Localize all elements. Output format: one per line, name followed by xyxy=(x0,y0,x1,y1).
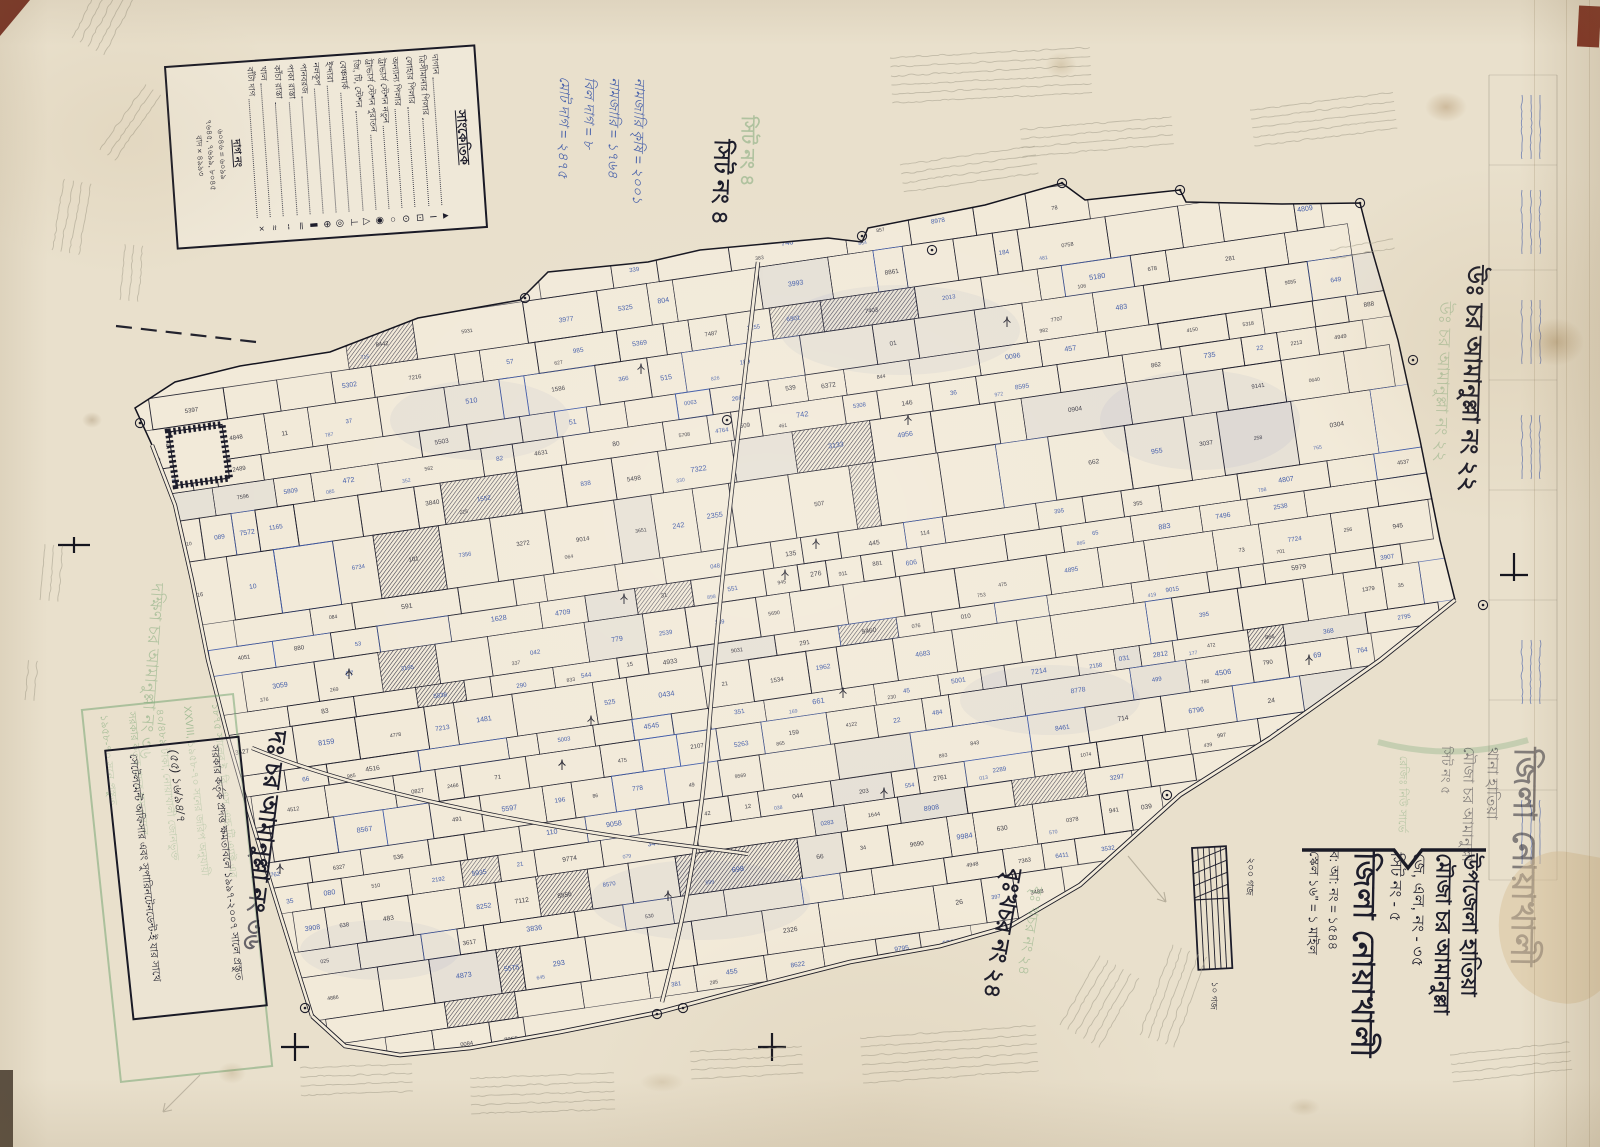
title-line: সিট নং - ৫ xyxy=(1380,852,1407,1059)
svg-text:242: 242 xyxy=(672,520,685,531)
scale-note-top: ২০০ গজ xyxy=(1239,857,1258,896)
svg-text:461: 461 xyxy=(778,423,788,430)
svg-text:483: 483 xyxy=(1115,303,1128,313)
svg-text:66: 66 xyxy=(302,776,310,784)
svg-text:21: 21 xyxy=(516,862,523,869)
svg-text:865: 865 xyxy=(1076,540,1086,547)
title-line: মৌজা চর আমানুল্লা xyxy=(1426,853,1457,1060)
svg-text:833: 833 xyxy=(566,677,576,684)
svg-text:80: 80 xyxy=(612,440,621,448)
svg-text:383: 383 xyxy=(755,255,765,262)
svg-text:715: 715 xyxy=(360,354,370,361)
scanned-cadastral-map-sheet: 3397403838578648978788442715593139775325… xyxy=(0,0,1600,1147)
title-line: জে, এল, নং - ৩৫ xyxy=(1403,853,1430,1060)
svg-text:35: 35 xyxy=(1398,582,1405,589)
svg-text:12: 12 xyxy=(744,804,751,811)
svg-text:898: 898 xyxy=(707,594,717,601)
authority-stamp-lines: সরকার কর্তৃক প্রদত্ত ক্ষমতাবলে ১৯৯৭-২০০৭… xyxy=(111,743,261,1013)
scale-note-bottom: ১০ গজ xyxy=(1206,981,1222,1010)
svg-text:225: 225 xyxy=(459,509,469,516)
svg-text:230: 230 xyxy=(887,694,897,701)
svg-text:844: 844 xyxy=(876,374,886,381)
blue-note-line: নামজারি = ১৭৬৪ xyxy=(600,77,627,204)
sheet-number-label: সিট নং ৪ xyxy=(699,139,741,226)
svg-text:22: 22 xyxy=(893,717,902,725)
svg-text:269: 269 xyxy=(330,687,340,694)
legend-item-label: পাকা রাস্তা xyxy=(283,64,299,100)
legend-leader-dots xyxy=(248,99,257,218)
svg-text:865: 865 xyxy=(776,740,786,747)
svg-text:945: 945 xyxy=(777,579,787,586)
svg-text:742: 742 xyxy=(795,409,809,420)
authority-stamp-box: সরকার কর্তৃক প্রদত্ত ক্ষমতাবলে ১৯৯৭-২০০৭… xyxy=(104,736,268,1021)
svg-text:10: 10 xyxy=(249,583,258,591)
legend-item-label: দাগান xyxy=(428,54,443,75)
legend-item-symbol-icon: ◎ xyxy=(333,215,347,232)
svg-text:826: 826 xyxy=(711,375,721,382)
svg-text:038: 038 xyxy=(774,805,784,812)
legend-item-symbol-icon: ⊥ xyxy=(346,214,360,231)
svg-text:080: 080 xyxy=(323,888,336,898)
svg-text:472: 472 xyxy=(1207,642,1216,649)
svg-text:73: 73 xyxy=(1238,547,1245,554)
svg-text:110: 110 xyxy=(546,827,558,837)
svg-text:765: 765 xyxy=(1313,445,1323,452)
legend-item-label: বেঞ্চমার্ক xyxy=(335,60,350,90)
svg-text:804: 804 xyxy=(657,296,670,306)
title-line: জিলা নোয়াখালী xyxy=(1340,852,1384,1059)
blue-note-line: মোট দাগ = ২৪৭৫ xyxy=(550,76,577,203)
svg-text:661: 661 xyxy=(812,696,826,707)
neighbor-north-label: উঃ চর আমানুল্লা নং ২২ xyxy=(1446,265,1494,493)
legend-item-symbol-icon: ╌ xyxy=(280,218,294,235)
svg-text:570: 570 xyxy=(1049,829,1059,836)
legend-item-label: বাঁটা দাগ xyxy=(243,67,258,97)
legend-item-label: খাল xyxy=(256,66,270,81)
svg-text:787: 787 xyxy=(324,432,334,439)
legend-item-label: কাঁচা রাস্তা xyxy=(270,65,286,99)
svg-text:86: 86 xyxy=(592,793,599,800)
legend-item-symbol-icon: Ι xyxy=(425,208,439,225)
legend-item-symbol-icon: △ xyxy=(359,213,373,230)
svg-text:35: 35 xyxy=(286,898,295,906)
legend-item-symbol-icon: × xyxy=(254,220,268,237)
svg-text:24: 24 xyxy=(1267,697,1276,705)
svg-text:169: 169 xyxy=(789,708,799,715)
legend-content: সাংকেতিক দাগান▲ত্রিসীমানার পিলারΙলোহার প… xyxy=(170,52,477,242)
svg-text:997: 997 xyxy=(1217,732,1227,739)
green-side-note: রেজিঃ নিউ সার্ভে xyxy=(1392,756,1412,833)
svg-text:510: 510 xyxy=(371,883,381,890)
svg-text:972: 972 xyxy=(994,391,1004,398)
handwritten-blue-notes: নামজারি কৃষি = ২০০১নামজারি = ১৭৬৪বিল দাগ… xyxy=(550,76,652,204)
svg-text:883: 883 xyxy=(1158,521,1171,532)
svg-text:83: 83 xyxy=(321,708,330,716)
legend-item-symbol-icon: ≈ xyxy=(267,219,281,236)
legend-item-symbol-icon: ○ xyxy=(386,211,400,228)
legend-item-symbol-icon: ⊙ xyxy=(399,210,413,227)
svg-text:893: 893 xyxy=(938,753,948,760)
svg-text:857: 857 xyxy=(876,227,885,234)
hatched-compound xyxy=(169,425,230,486)
legend-item-symbol-icon: ⊕ xyxy=(320,216,334,233)
svg-text:15: 15 xyxy=(626,662,633,669)
svg-text:627: 627 xyxy=(554,360,564,367)
svg-text:49: 49 xyxy=(688,782,695,789)
scale-bar xyxy=(1192,846,1232,970)
legend-item-label: নলকূপ xyxy=(309,62,324,86)
svg-text:419: 419 xyxy=(1147,592,1157,599)
svg-text:085: 085 xyxy=(326,489,336,496)
legend-item-list: দাগান▲ত্রিসীমানার পিলারΙলোহার পিলার⊡অন্য… xyxy=(243,54,452,237)
svg-text:285: 285 xyxy=(709,979,719,986)
svg-text:982: 982 xyxy=(1039,327,1049,334)
svg-text:57: 57 xyxy=(506,358,515,366)
svg-text:079: 079 xyxy=(622,853,632,860)
legend-item-symbol-icon: ▮ xyxy=(307,217,321,234)
title-line: উপজেলা হাতিয়া xyxy=(1453,854,1484,1061)
legend-item-label: ইন্দারা xyxy=(322,61,337,83)
svg-text:293: 293 xyxy=(552,958,565,969)
svg-text:352: 352 xyxy=(402,478,412,485)
svg-text:337: 337 xyxy=(511,660,521,667)
svg-text:42: 42 xyxy=(704,811,711,818)
svg-text:084: 084 xyxy=(329,614,338,621)
svg-text:753: 753 xyxy=(977,592,987,599)
svg-text:076: 076 xyxy=(911,623,921,630)
blue-note-line: বিল দাগ = ৮ xyxy=(575,77,602,204)
svg-text:475: 475 xyxy=(998,582,1008,589)
svg-text:911: 911 xyxy=(838,571,848,578)
svg-text:78: 78 xyxy=(1051,205,1058,212)
svg-text:843: 843 xyxy=(970,740,980,747)
svg-text:472: 472 xyxy=(342,475,355,486)
legend-item-label: পানবরজ xyxy=(296,63,311,94)
svg-text:645: 645 xyxy=(536,974,546,981)
svg-text:013: 013 xyxy=(979,775,989,782)
legend-item-symbol-icon: ◉ xyxy=(372,212,386,229)
legend-box: সাংকেতিক দাগান▲ত্রিসীমানার পিলারΙলোহার প… xyxy=(164,44,488,249)
svg-text:439: 439 xyxy=(1203,742,1213,749)
corner-mark-bottom-left xyxy=(0,1070,13,1147)
blue-note-line: নামজারি কৃষি = ২০০১ xyxy=(625,78,652,205)
svg-text:65: 65 xyxy=(1092,530,1099,537)
title-line: স্কেল ১৬" = ১ মাইল xyxy=(1300,851,1324,1058)
svg-text:562: 562 xyxy=(424,465,433,472)
svg-text:798: 798 xyxy=(1258,487,1268,494)
dashed-join-line xyxy=(116,326,256,342)
svg-text:177: 177 xyxy=(1188,650,1198,657)
legend-item-symbol-icon: ▲ xyxy=(438,207,452,224)
svg-text:53: 53 xyxy=(355,641,362,648)
svg-text:735: 735 xyxy=(1203,351,1216,361)
svg-text:256: 256 xyxy=(1343,527,1353,534)
svg-text:21: 21 xyxy=(721,681,728,688)
svg-text:786: 786 xyxy=(1200,679,1210,686)
svg-text:457: 457 xyxy=(1064,343,1077,354)
svg-text:69: 69 xyxy=(1313,650,1322,660)
svg-text:66: 66 xyxy=(816,853,825,861)
svg-text:064: 064 xyxy=(564,554,574,561)
svg-text:330: 330 xyxy=(676,477,686,484)
svg-text:34: 34 xyxy=(860,845,867,852)
svg-text:481: 481 xyxy=(1039,255,1049,262)
legend-item-symbol-icon: ⊡ xyxy=(412,209,426,226)
svg-text:701: 701 xyxy=(1276,548,1286,555)
svg-text:376: 376 xyxy=(260,697,270,704)
corner-mark-top-right xyxy=(1577,5,1600,47)
legend-item-symbol-icon: ═ xyxy=(293,218,307,235)
svg-text:106: 106 xyxy=(1077,283,1087,290)
svg-text:37: 37 xyxy=(345,418,352,425)
svg-text:26: 26 xyxy=(955,899,964,907)
title-block: উপজেলা হাতিয়ামৌজা চর আমানুল্লাজে, এল, ন… xyxy=(1300,851,1484,1060)
